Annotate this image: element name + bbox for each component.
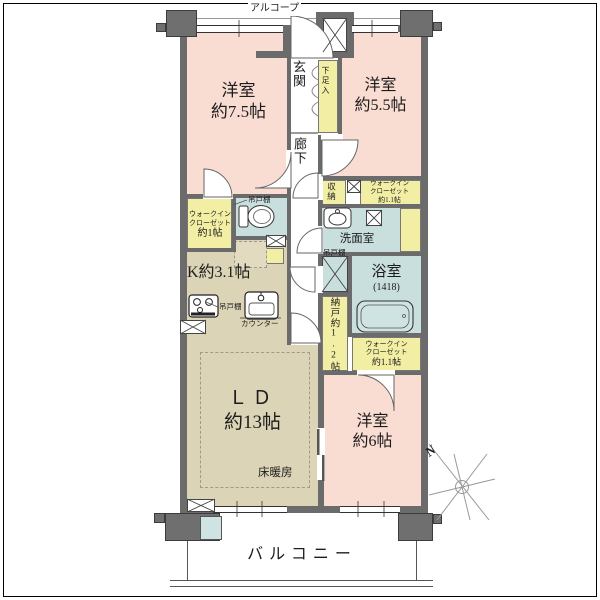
cupboard-toilet-label: 吊戸棚 — [248, 195, 271, 204]
window-room55 — [352, 25, 398, 33]
window-room6-balcony — [340, 506, 400, 513]
pillar-bottom-left-tab — [154, 513, 165, 523]
wic-left-label: ウォークイン クローゼット 約1帖 — [188, 202, 232, 248]
wall-bath-bottom — [348, 333, 421, 337]
cupboard-kitchen-label: 吊戸棚 — [219, 302, 242, 311]
pillar-top-right-tab — [433, 22, 442, 31]
alcove-line — [197, 18, 400, 19]
corridor-floor — [291, 56, 318, 345]
pillar-bottom-right — [398, 513, 433, 541]
wall-wic-left-bottom — [187, 248, 236, 252]
slop-sink-box — [200, 516, 222, 540]
floor-plan: アルコープ 玄関 下足入 廊下 洋室 約7.5帖 洋室 約5.5帖 洋室 約6帖… — [0, 0, 600, 600]
wall-porch-horizontal — [256, 51, 291, 58]
shaft-box-ld-corner — [187, 499, 215, 512]
counter-label: カウンター — [241, 319, 279, 328]
shaft-box-kitchen-wall — [180, 320, 206, 334]
pantry-label: 納戸約1.2帖 — [328, 297, 338, 372]
meter-box — [323, 18, 347, 52]
balcony-label: バルコニー — [186, 540, 418, 570]
pillar-bottom-right-tab — [433, 514, 442, 524]
shaft-box-kitchen — [266, 235, 286, 247]
room-55-label: 洋室 約5.5帖 — [340, 68, 421, 124]
room-55-floor-ext — [322, 139, 342, 179]
entrance-label: 玄関 — [292, 60, 305, 88]
storage-label: 収納 — [327, 182, 336, 201]
ld-label: ＬＤ 約13帖 — [190, 385, 315, 437]
room-6-label: 洋室 約6帖 — [324, 406, 421, 458]
corridor-label: 廊下 — [293, 137, 306, 165]
pillar-top-right — [400, 10, 433, 37]
wall-wic-left-right — [232, 198, 236, 252]
shaft-box-washroom — [366, 210, 382, 226]
entrance-step-line — [291, 132, 318, 134]
balcony-rail-outer — [170, 580, 433, 581]
floor-heating-label: 床暖房 — [258, 466, 293, 480]
balcony-rail-inner — [170, 586, 433, 587]
room-75-label: 洋室 約7.5帖 — [186, 72, 291, 130]
wic-bottom-label: ウォークイン クローゼット 約1.1帖 — [352, 338, 421, 370]
wall-pantry-top — [318, 292, 352, 296]
window-ld-balcony — [213, 506, 287, 513]
bathroom-label: 浴室 (1418) — [352, 259, 421, 299]
wall-right — [421, 20, 428, 513]
washroom-label: 洗面室 — [322, 232, 392, 247]
window-room75 — [197, 25, 283, 33]
linen-closet-floor — [400, 208, 421, 252]
kitchen-small-closet — [266, 248, 284, 264]
wall-room75-bottom — [187, 194, 291, 198]
shoe-closet-label: 下足入 — [321, 66, 329, 96]
wic-top-label: ウォークイン クローゼット 約1.1帖 — [358, 180, 421, 205]
pillar-top-left-tab — [156, 23, 166, 32]
alcove-label: アルコープ — [248, 3, 301, 16]
cupboard-bath-label: 吊戸棚 — [323, 248, 346, 257]
pillar-top-left — [166, 10, 197, 37]
wall-room55-jog — [318, 135, 342, 139]
pipe-space-box — [322, 256, 348, 292]
kitchen-label: K約3.1帖 — [187, 263, 251, 283]
